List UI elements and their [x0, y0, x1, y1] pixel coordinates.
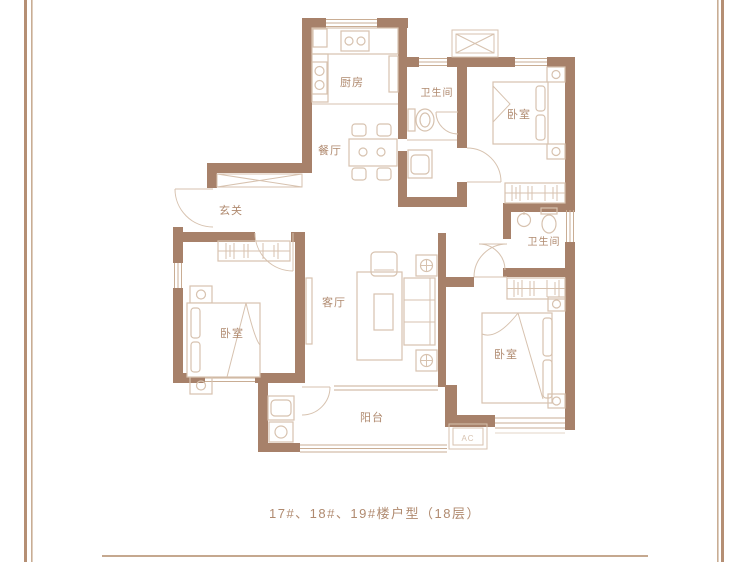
foyer [175, 174, 302, 227]
dining-table-icon [349, 139, 397, 166]
label-kitchen: 厨房 [340, 76, 364, 89]
label-bedroom-tr: 卧室 [507, 107, 531, 121]
dining-chair-icon [352, 168, 366, 180]
label-living: 客厅 [322, 295, 346, 309]
washer-icon [269, 422, 293, 442]
bedroom-br-window [495, 418, 565, 428]
balcony-slider [334, 386, 438, 390]
basin-icon [518, 211, 531, 227]
wash-basin-icon [408, 150, 432, 178]
label-bedroom-left: 卧室 [220, 326, 244, 340]
floor-plan-image: AC 厨房 卫生间 卧室 餐厅 玄关 卫生间 客厅 卧室 卧室 阳台 17#、1… [0, 0, 750, 562]
ac-label: AC [461, 434, 474, 443]
coffee-table-icon [357, 272, 402, 360]
dining-set [349, 124, 397, 180]
nightstand-icon [547, 67, 565, 82]
sofa-icon [404, 278, 435, 345]
label-bedroom-br: 卧室 [494, 347, 518, 361]
label-bath-top: 卫生间 [421, 86, 454, 99]
kitchen-cabinet [389, 56, 398, 92]
bed-icon [187, 303, 260, 377]
ac-platform: AC [449, 424, 487, 449]
dining-chair-icon [352, 124, 366, 136]
label-foyer: 玄关 [219, 203, 243, 217]
plan-caption: 17#、18#、19#楼户型（18层） [269, 506, 481, 521]
tv-cabinet-icon [306, 278, 312, 344]
label-balcony: 阳台 [360, 410, 384, 424]
kitchen-sink-icon [341, 31, 369, 51]
bedroom-top-right [467, 67, 565, 203]
kitchen-counter [312, 28, 398, 54]
elevator-shaft-icon [452, 30, 498, 57]
bath-top-window [419, 59, 447, 66]
shoe-cabinet-icon [217, 174, 302, 187]
kitchen-window [326, 20, 377, 27]
bottom-rule [102, 555, 648, 557]
page-border-right [717, 0, 724, 562]
dining-chair-icon [377, 168, 391, 180]
dining-chair-icon [377, 124, 391, 136]
laundry-sink-icon [268, 396, 294, 420]
label-dining: 餐厅 [318, 143, 342, 157]
bath-mid-window [567, 210, 574, 242]
wardrobe-icon [218, 241, 290, 261]
range-hood-icon [313, 29, 327, 47]
bath-top [408, 109, 458, 178]
bedroom-tr-door-icon [467, 148, 501, 182]
toilet-icon [408, 109, 434, 131]
kitchen [312, 28, 398, 102]
bedroom-left [187, 233, 293, 394]
kitchen-side-counter [312, 54, 328, 102]
side-table-icon [416, 255, 437, 276]
label-bath-mid: 卫生间 [528, 235, 561, 248]
stove-icon [312, 62, 327, 94]
living-room [306, 252, 437, 371]
balcony [268, 387, 330, 442]
bath-top-door-icon [436, 112, 458, 134]
hall-door-icon [474, 244, 507, 277]
nightstand-icon [547, 144, 565, 159]
wardrobe-icon [507, 278, 565, 299]
bedroom-left-window [175, 263, 182, 288]
side-table-icon [416, 350, 437, 371]
page-border-left [24, 0, 33, 562]
nightstand-icon [190, 286, 212, 303]
bedroom-tr-window [515, 59, 547, 66]
balcony-railing [300, 445, 447, 452]
entry-door-icon [175, 189, 213, 227]
balcony-door-icon [302, 387, 330, 415]
wardrobe-icon [505, 183, 565, 203]
floorplan-page: AC 厨房 卫生间 卧室 餐厅 玄关 卫生间 客厅 卧室 卧室 阳台 17#、1… [0, 0, 750, 562]
